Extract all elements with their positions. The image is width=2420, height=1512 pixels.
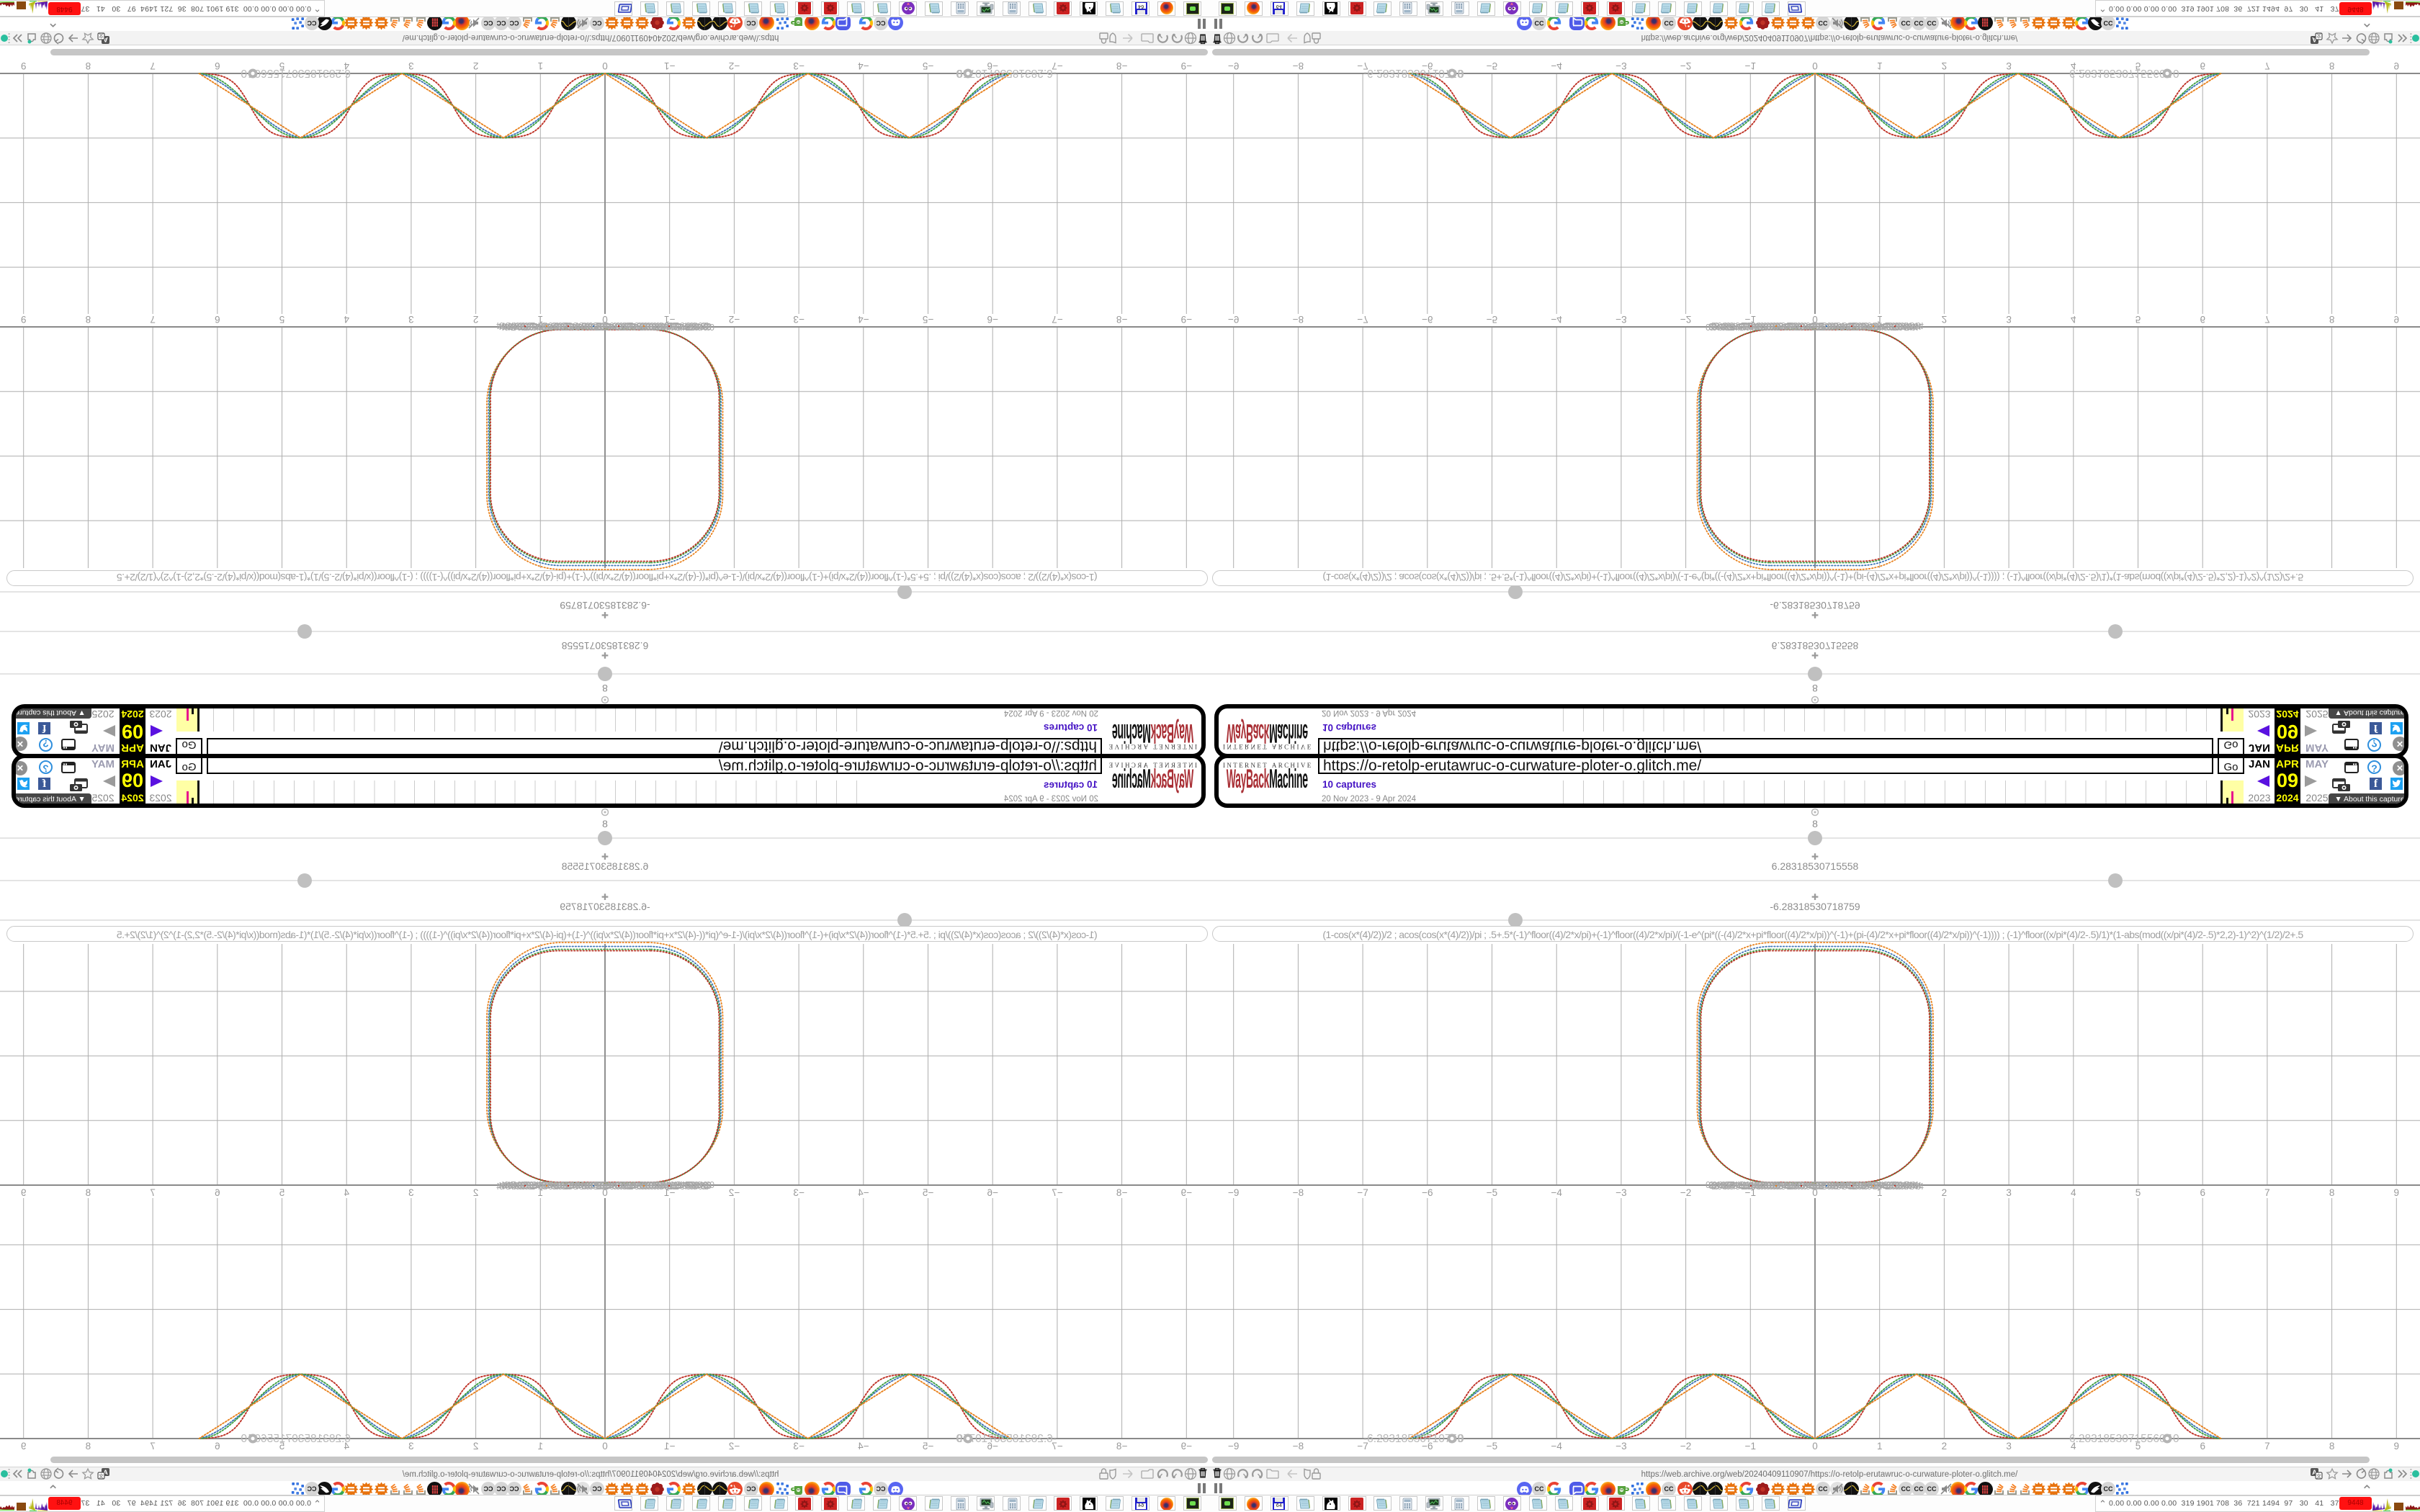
svg-text:−8: −8 — [1293, 1441, 1304, 1452]
svg-text:文: 文 — [2316, 1473, 2321, 1480]
svg-text:−8: −8 — [1116, 60, 1127, 71]
svg-text:−1: −1 — [664, 60, 675, 71]
svg-text:5: 5 — [2136, 1187, 2141, 1198]
svg-text:-6.28318530718759: -6.28318530718759 — [560, 901, 650, 912]
svg-text:2: 2 — [473, 314, 479, 325]
svg-text:−7: −7 — [1052, 314, 1062, 325]
svg-text:2: 2 — [1942, 1187, 1948, 1198]
svg-text:−8: −8 — [1116, 1441, 1127, 1452]
svg-text:3: 3 — [2006, 1441, 2012, 1452]
svg-text:6.28318530715558: 6.28318530715558 — [1772, 640, 1859, 652]
svg-text:−5: −5 — [1487, 1441, 1497, 1452]
svg-text:2: 2 — [1942, 1441, 1948, 1452]
svg-text:−2: −2 — [729, 1441, 740, 1452]
svg-text:−2: −2 — [729, 314, 740, 325]
svg-text:✚: ✚ — [601, 650, 609, 660]
svg-text:2: 2 — [1942, 60, 1948, 71]
svg-text:−3: −3 — [1615, 60, 1626, 71]
svg-text:0: 0 — [241, 1433, 247, 1445]
svg-text:−1: −1 — [664, 1441, 675, 1452]
svg-text:7: 7 — [150, 1187, 156, 1198]
svg-text:−9: −9 — [1228, 314, 1239, 325]
svg-text:−5: −5 — [923, 1441, 933, 1452]
svg-text:−2: −2 — [1680, 1187, 1691, 1198]
svg-text:7: 7 — [2264, 1441, 2270, 1452]
svg-text:−2: −2 — [729, 1187, 740, 1198]
svg-text:−8: −8 — [1116, 1187, 1127, 1198]
svg-text:0: 0 — [602, 1441, 608, 1452]
svg-text:9: 9 — [2394, 1441, 2400, 1452]
svg-text:−6: −6 — [1422, 314, 1433, 325]
svg-text:−5: −5 — [923, 1187, 933, 1198]
svg-text:0: 0 — [1458, 1433, 1464, 1445]
svg-text:8: 8 — [602, 818, 608, 829]
svg-text:3: 3 — [2006, 1187, 2012, 1198]
svg-text:−5: −5 — [923, 60, 933, 71]
svg-text:−8: −8 — [1293, 60, 1304, 71]
svg-text:−3: −3 — [793, 1441, 804, 1452]
svg-text:−4: −4 — [858, 314, 869, 325]
svg-text:−7: −7 — [1357, 1187, 1368, 1198]
svg-text:−2: −2 — [729, 60, 740, 71]
svg-text:9: 9 — [21, 314, 27, 325]
svg-text:−4: −4 — [1551, 1441, 1562, 1452]
svg-text:−6: −6 — [987, 1187, 998, 1198]
svg-text:✚: ✚ — [1811, 610, 1819, 620]
svg-text:−9: −9 — [1228, 1441, 1239, 1452]
svg-text:−9: −9 — [1228, 1187, 1239, 1198]
svg-text:−2: −2 — [1680, 60, 1691, 71]
svg-text:8: 8 — [86, 1187, 91, 1198]
svg-text:6: 6 — [215, 60, 220, 71]
svg-text:−4: −4 — [858, 1441, 869, 1452]
svg-text:1: 1 — [538, 1441, 544, 1452]
svg-text:3: 3 — [2006, 314, 2012, 325]
svg-text:6.283185307155607: 6.283185307155607 — [2069, 1433, 2172, 1445]
svg-text:0.0049987541510.4999583385410.: 0.0049987541510.4999583385410.9950041652… — [501, 322, 714, 332]
svg-text:7: 7 — [150, 60, 156, 71]
svg-text:8: 8 — [86, 314, 91, 325]
svg-text:8: 8 — [1812, 818, 1818, 829]
svg-text:−5: −5 — [923, 314, 933, 325]
svg-text:6: 6 — [2200, 314, 2205, 325]
svg-text:6: 6 — [215, 1441, 220, 1452]
svg-text:7: 7 — [150, 314, 156, 325]
svg-text:8: 8 — [2329, 1441, 2335, 1452]
svg-text:0: 0 — [2173, 67, 2179, 79]
svg-text:9: 9 — [21, 1187, 27, 1198]
svg-text:6: 6 — [215, 314, 220, 325]
svg-text:-6.28318530718759: -6.28318530718759 — [560, 600, 650, 611]
svg-text:文: 文 — [99, 1473, 104, 1480]
svg-text:6: 6 — [2200, 1187, 2205, 1198]
svg-text:3: 3 — [408, 1187, 414, 1198]
svg-text:8: 8 — [602, 683, 608, 694]
svg-text:−7: −7 — [1357, 314, 1368, 325]
svg-text:1: 1 — [1877, 1441, 1883, 1452]
svg-text:9: 9 — [2394, 1187, 2400, 1198]
svg-text:-6.28318530718759: -6.28318530718759 — [1770, 600, 1860, 611]
svg-text:−5: −5 — [1487, 1187, 1497, 1198]
svg-text:−3: −3 — [1615, 314, 1626, 325]
svg-text:6.28318530715558: 6.28318530715558 — [561, 860, 648, 872]
svg-text:4: 4 — [344, 314, 349, 325]
svg-text:1: 1 — [1877, 60, 1883, 71]
svg-text:0: 0 — [1812, 60, 1818, 71]
svg-text:−6: −6 — [987, 314, 998, 325]
svg-text:8: 8 — [2329, 314, 2335, 325]
svg-text:5: 5 — [279, 1187, 285, 1198]
svg-text:−3: −3 — [1615, 1187, 1626, 1198]
svg-text:−9: −9 — [1181, 1441, 1192, 1452]
svg-text:−7: −7 — [1052, 1187, 1062, 1198]
svg-text:7: 7 — [2264, 1187, 2270, 1198]
svg-text:−8: −8 — [1116, 314, 1127, 325]
svg-text:6.28318530715558: 6.28318530715558 — [1772, 860, 1859, 872]
svg-text:0.0049987541510.4999583385410.: 0.0049987541510.4999583385410.9950041652… — [1706, 322, 1919, 332]
svg-text:9: 9 — [2394, 60, 2400, 71]
svg-text:7: 7 — [150, 1441, 156, 1452]
svg-text:2: 2 — [473, 1441, 479, 1452]
svg-text:−1: −1 — [1745, 1441, 1756, 1452]
svg-text:6.283185307155607: 6.283185307155607 — [248, 1433, 351, 1445]
svg-text:−3: −3 — [793, 60, 804, 71]
svg-text:7: 7 — [2264, 314, 2270, 325]
svg-text:4: 4 — [2071, 1187, 2076, 1198]
svg-text:−8: −8 — [1293, 1187, 1304, 1198]
svg-text:−2: −2 — [1680, 314, 1691, 325]
svg-text:−4: −4 — [1551, 314, 1562, 325]
svg-text:−9: −9 — [1181, 1187, 1192, 1198]
svg-text:0: 0 — [241, 67, 247, 79]
svg-text:8: 8 — [86, 60, 91, 71]
svg-text:3: 3 — [408, 314, 414, 325]
svg-text:6.283185307155607: 6.283185307155607 — [2069, 67, 2172, 79]
svg-text:4: 4 — [2071, 314, 2076, 325]
svg-text:0.0049987541510.4999583385410.: 0.0049987541510.4999583385410.9950041652… — [1706, 1180, 1919, 1190]
svg-text:2: 2 — [1942, 314, 1948, 325]
svg-text:0: 0 — [1812, 1441, 1818, 1452]
svg-text:✚: ✚ — [601, 610, 609, 620]
svg-text:8: 8 — [1812, 683, 1818, 694]
svg-text:−1: −1 — [1745, 60, 1756, 71]
svg-text:9: 9 — [2394, 314, 2400, 325]
svg-text:−5: −5 — [1487, 60, 1497, 71]
svg-text:8: 8 — [86, 1441, 91, 1452]
svg-text:0.0049987541510.4999583385410.: 0.0049987541510.4999583385410.9950041652… — [501, 1180, 714, 1190]
svg-text:2: 2 — [473, 1187, 479, 1198]
svg-text:0: 0 — [2173, 1433, 2179, 1445]
svg-text:✚: ✚ — [1811, 650, 1819, 660]
svg-text:8: 8 — [2329, 60, 2335, 71]
svg-text:6: 6 — [2200, 60, 2205, 71]
svg-text:−3: −3 — [793, 1187, 804, 1198]
svg-text:8: 8 — [2329, 1187, 2335, 1198]
svg-text:3: 3 — [2006, 60, 2012, 71]
svg-text:0: 0 — [1458, 67, 1464, 79]
svg-text:−8: −8 — [1293, 314, 1304, 325]
svg-text:5: 5 — [279, 314, 285, 325]
svg-text:9: 9 — [21, 1441, 27, 1452]
svg-text:6.283185307155607: 6.283185307155607 — [248, 67, 351, 79]
svg-text:−6: −6 — [1422, 1187, 1433, 1198]
svg-text:7: 7 — [2264, 60, 2270, 71]
svg-text:−9: −9 — [1181, 60, 1192, 71]
svg-text:3: 3 — [408, 60, 414, 71]
svg-text:−3: −3 — [793, 314, 804, 325]
svg-text:−9: −9 — [1228, 60, 1239, 71]
svg-text:−5: −5 — [1487, 314, 1497, 325]
svg-text:0: 0 — [956, 67, 962, 79]
svg-text:0: 0 — [956, 1433, 962, 1445]
svg-text:5: 5 — [2136, 314, 2141, 325]
svg-text:1: 1 — [538, 60, 544, 71]
svg-text:0: 0 — [602, 60, 608, 71]
svg-text:-6.28318530718759: -6.28318530718759 — [1770, 901, 1860, 912]
svg-text:−4: −4 — [1551, 60, 1562, 71]
svg-text:6.28318530715558: 6.28318530715558 — [561, 640, 648, 652]
svg-text:−4: −4 — [858, 60, 869, 71]
svg-text:6: 6 — [215, 1187, 220, 1198]
svg-text:−9: −9 — [1181, 314, 1192, 325]
svg-text:9: 9 — [21, 60, 27, 71]
svg-text:−2: −2 — [1680, 1441, 1691, 1452]
svg-text:2: 2 — [473, 60, 479, 71]
svg-text:6: 6 — [2200, 1441, 2205, 1452]
svg-text:−4: −4 — [858, 1187, 869, 1198]
svg-text:−4: −4 — [1551, 1187, 1562, 1198]
svg-text:3: 3 — [408, 1441, 414, 1452]
svg-text:−3: −3 — [1615, 1441, 1626, 1452]
svg-text:4: 4 — [344, 1187, 349, 1198]
